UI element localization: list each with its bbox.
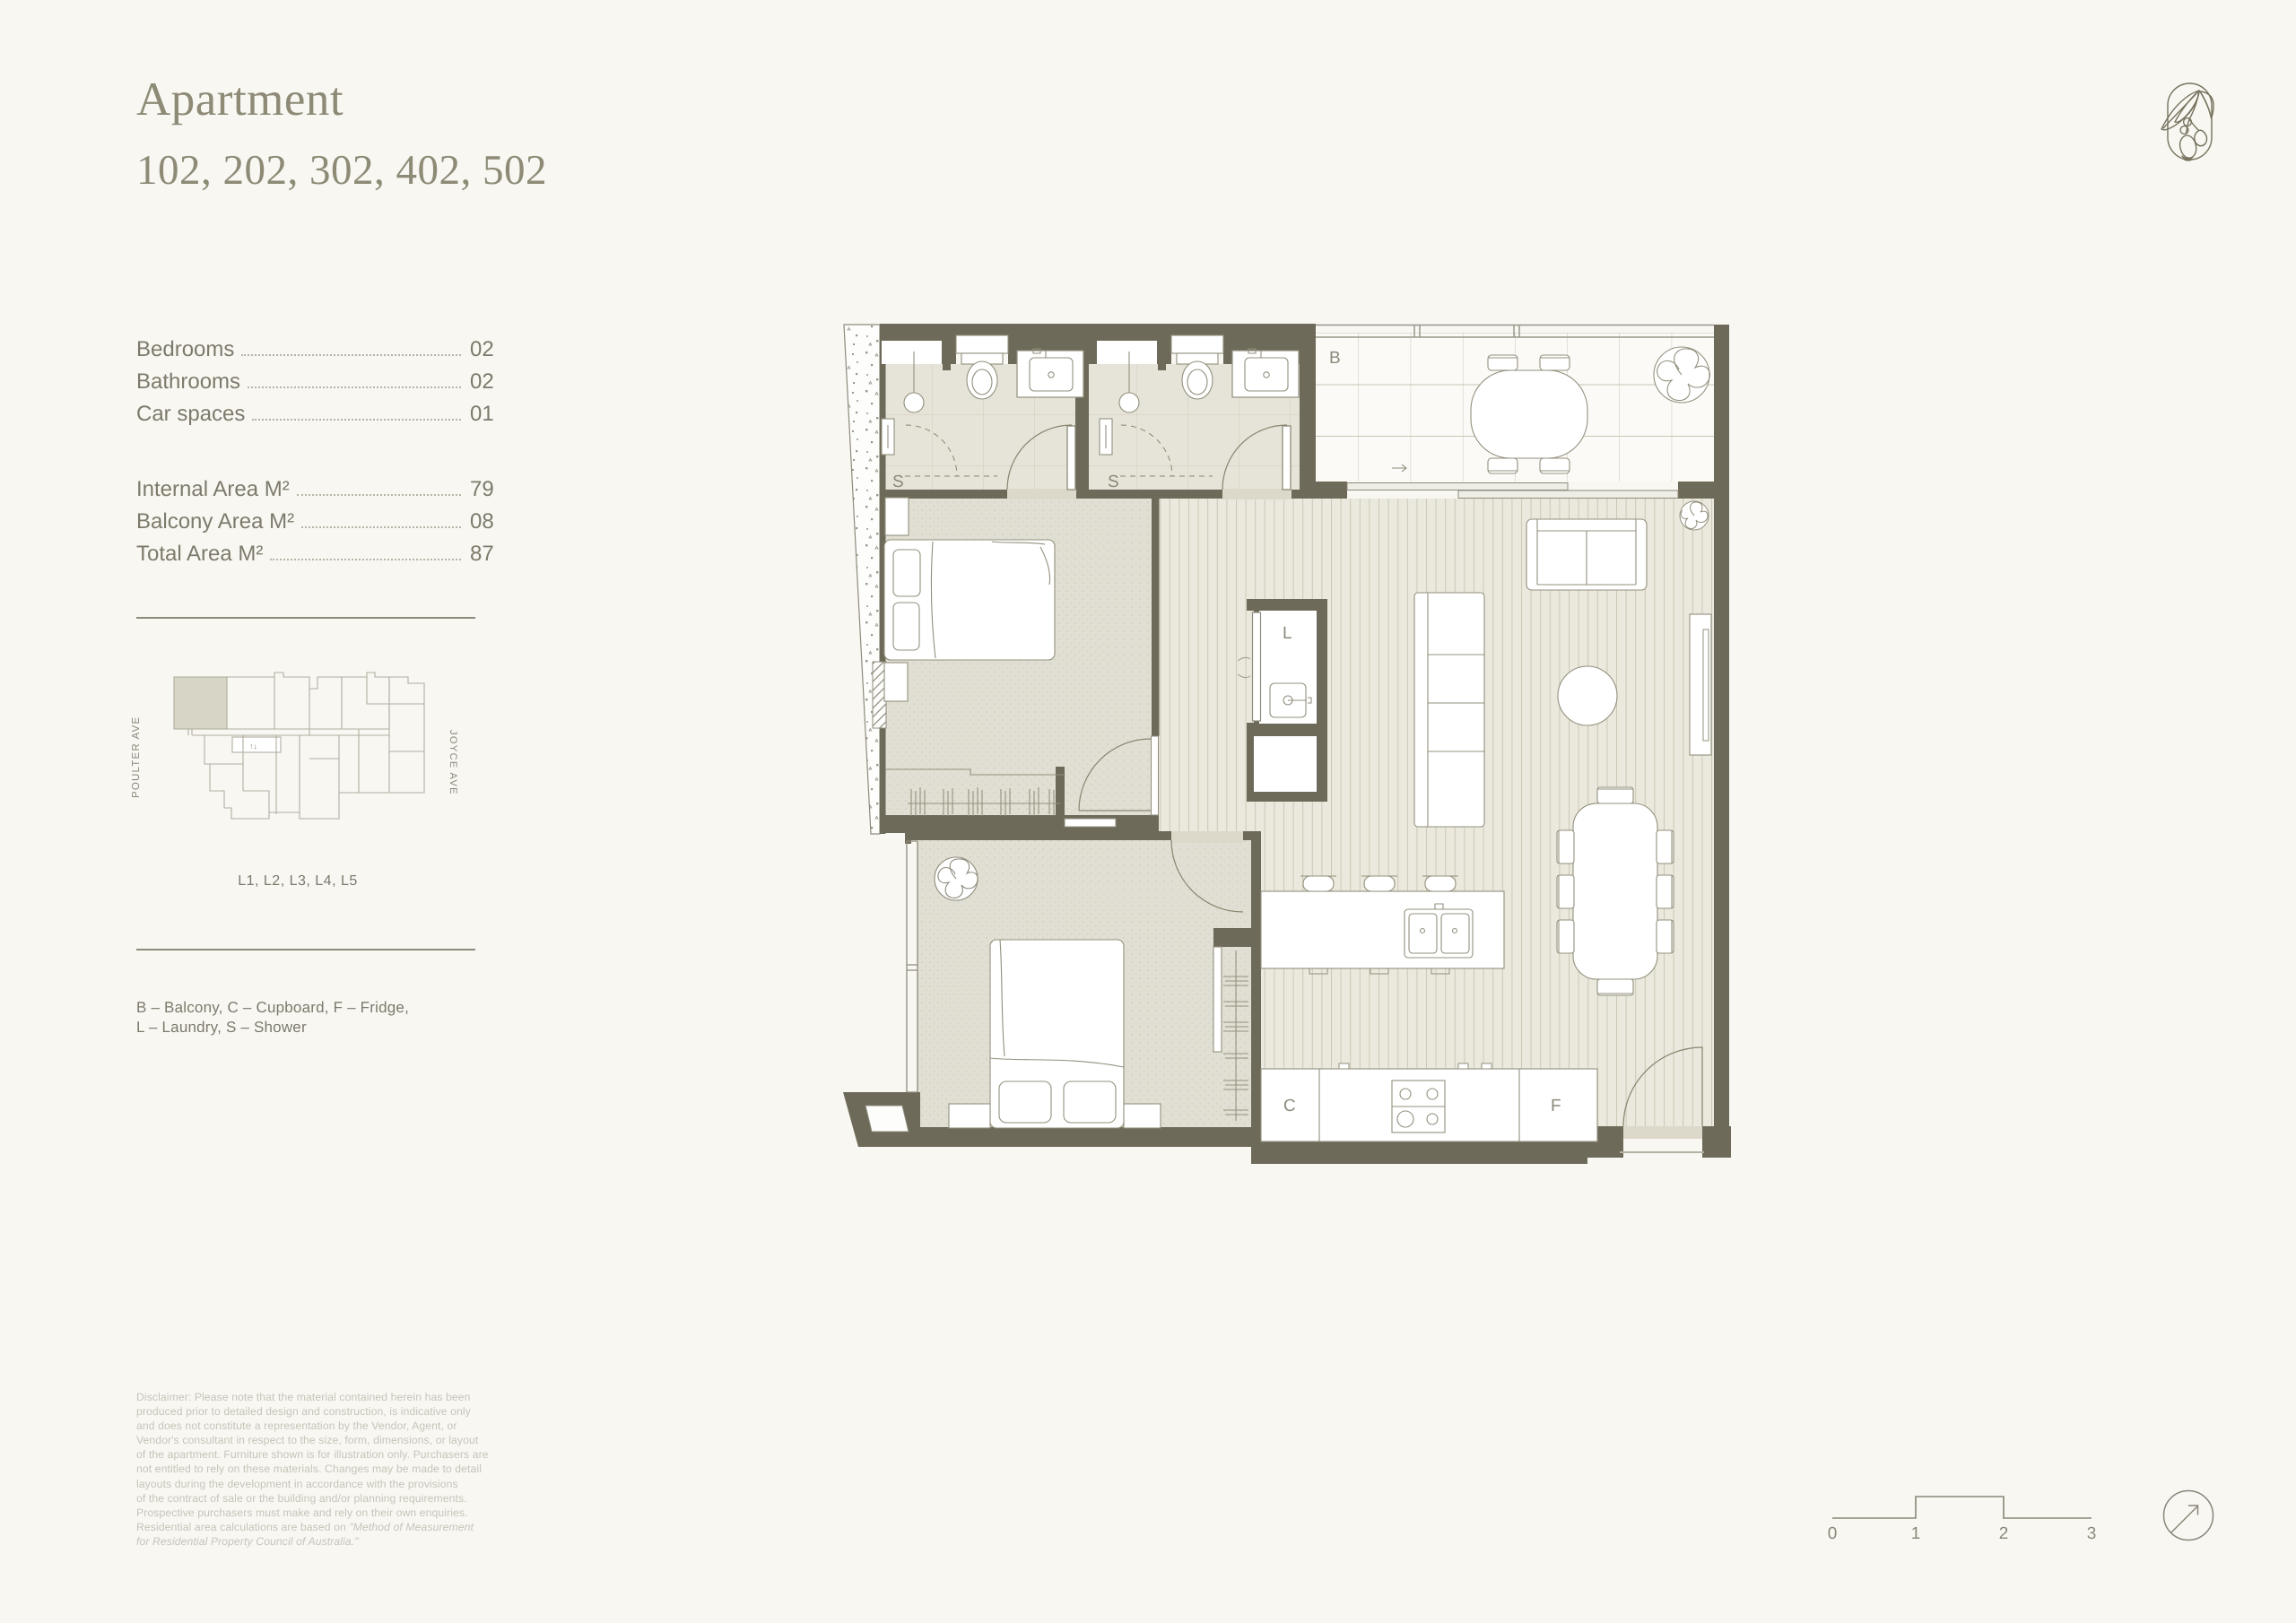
svg-text:0: 0 — [1828, 1524, 1838, 1543]
svg-text:S: S — [892, 473, 904, 491]
svg-text:1: 1 — [1911, 1524, 1921, 1543]
svg-text:3: 3 — [2087, 1524, 2097, 1543]
svg-text:↑↓: ↑↓ — [249, 742, 257, 751]
svg-text:F: F — [1551, 1097, 1561, 1115]
svg-text:B: B — [1329, 349, 1341, 368]
svg-text:L: L — [1283, 624, 1292, 643]
svg-text:C: C — [1283, 1097, 1296, 1115]
svg-text:2: 2 — [1999, 1524, 2009, 1543]
svg-text:S: S — [1108, 473, 1119, 491]
